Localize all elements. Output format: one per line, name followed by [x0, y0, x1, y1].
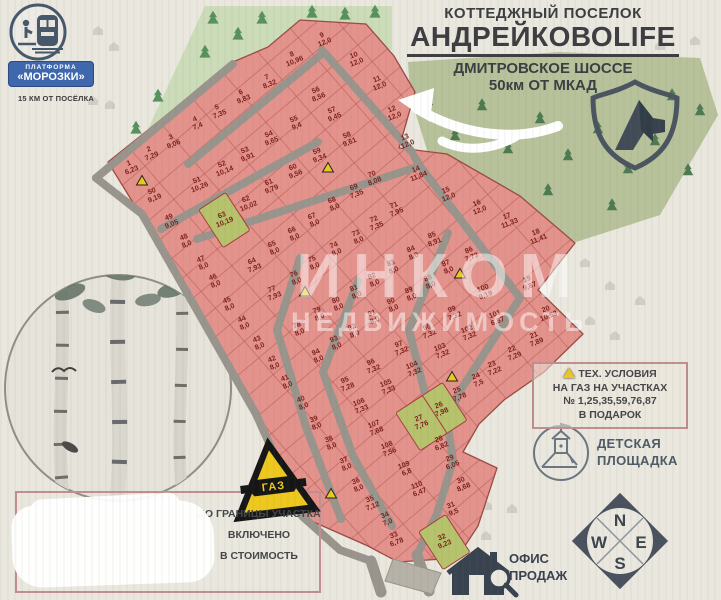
- tech-line4: В ПОДАРОК: [536, 409, 684, 423]
- house-icon: [585, 316, 595, 325]
- house-icon: [93, 26, 103, 35]
- tech-conditions-box: ТЕХ. УСЛОВИЯ НА ГАЗ НА УЧАСТКАХ № 1,25,3…: [532, 362, 688, 429]
- road-exit-pad: [385, 559, 441, 594]
- station-badge-type: ПЛАТФОРМА: [9, 64, 93, 71]
- house-icon: [605, 281, 615, 290]
- playground-label: ДЕТСКАЯ ПЛОЩАДКА: [597, 436, 678, 470]
- house-icon: [580, 258, 590, 267]
- tree-icon: [152, 89, 163, 102]
- compass-s: S: [614, 554, 625, 573]
- house-icon: [109, 42, 119, 51]
- house-icon: [610, 331, 620, 340]
- tree-icon: [130, 121, 141, 134]
- house-icon: [507, 504, 517, 513]
- station-badge-name: «МОРОЗКИ»: [9, 71, 93, 83]
- compass-e: E: [635, 533, 646, 552]
- settlement-name: АНДРЕЙКОВОLIFE: [407, 22, 679, 57]
- train-station-icon: [11, 5, 65, 59]
- playground-icon: [534, 424, 588, 480]
- title-block: КОТТЕДЖНЫЙ ПОСЕЛОК АНДРЕЙКОВОLIFE ДМИТРО…: [393, 5, 693, 94]
- subtitle-settlement: КОТТЕДЖНЫЙ ПОСЕЛОК: [393, 5, 693, 22]
- distance-from-mkad: 50км ОТ МКАД: [393, 77, 693, 94]
- compass-n: N: [614, 511, 626, 530]
- house-icon: [635, 296, 645, 305]
- sales-office-label: ОФИС ПРОДАЖ: [509, 551, 567, 585]
- boundary-note-text: ДО ГРАНИЦЫ УЧАСТКА ВКЛЮЧЕНО В СТОИМОСТЬ: [196, 504, 322, 567]
- station-badge: ПЛАТФОРМА «МОРОЗКИ»: [8, 61, 94, 87]
- house-icon: [481, 531, 491, 540]
- poster-canvas: 16,2327,2939,0647,457,3569,8378,32810,96…: [0, 0, 721, 600]
- highway-name: ДМИТРОВСКОЕ ШОССЕ: [393, 60, 693, 77]
- tech-line1: ТЕХ. УСЛОВИЯ: [578, 368, 656, 380]
- compass-rose: N W E S: [572, 493, 668, 589]
- warning-triangle-icon: [563, 368, 575, 378]
- compass-w: W: [591, 533, 608, 552]
- station-distance-note: 15 КМ ОТ ПОСЁЛКА: [2, 94, 110, 103]
- tech-line2: НА ГАЗ НА УЧАСТКАХ: [536, 382, 684, 396]
- tech-line3: № 1,25,35,59,76,87: [536, 395, 684, 409]
